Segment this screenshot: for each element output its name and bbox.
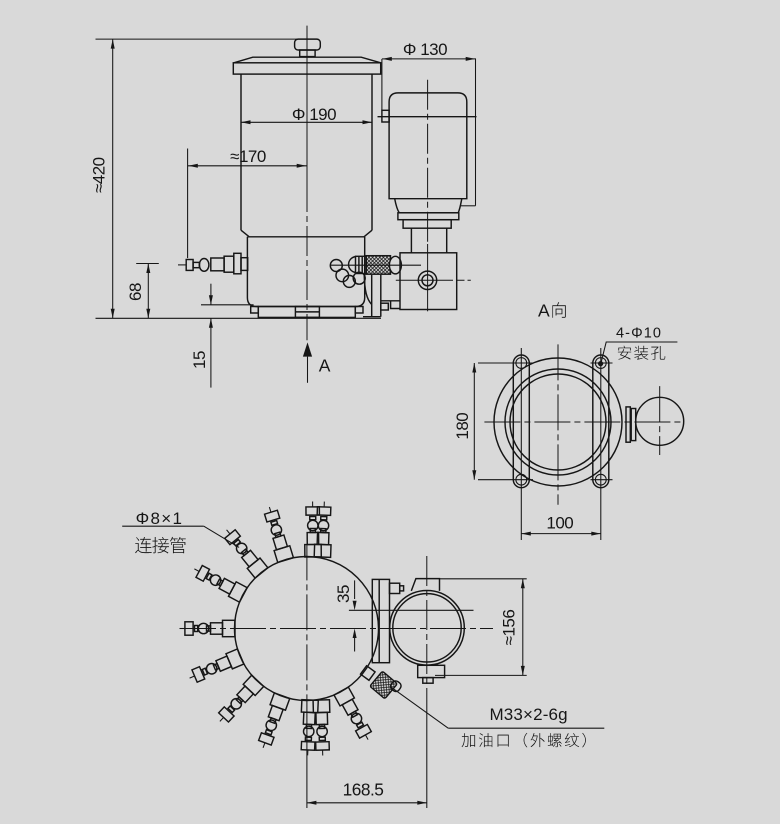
svg-text:180: 180 (453, 413, 472, 440)
svg-text:35: 35 (334, 585, 353, 603)
svg-text:Φ 130: Φ 130 (403, 40, 447, 59)
svg-text:15: 15 (190, 351, 209, 369)
svg-text:A: A (319, 355, 331, 375)
svg-text:≈170: ≈170 (230, 147, 266, 166)
svg-text:A: A (538, 301, 550, 321)
svg-text:M33×2-6g: M33×2-6g (490, 705, 568, 724)
svg-text:≈420: ≈420 (90, 157, 109, 193)
svg-text:≈156: ≈156 (500, 610, 519, 646)
svg-text:Φ8×1: Φ8×1 (136, 509, 184, 528)
svg-text:100: 100 (546, 514, 573, 533)
svg-text:Φ 190: Φ 190 (292, 105, 336, 124)
svg-text:4-Φ10: 4-Φ10 (616, 326, 662, 342)
svg-text:68: 68 (126, 283, 145, 301)
svg-text:168.5: 168.5 (343, 780, 384, 800)
